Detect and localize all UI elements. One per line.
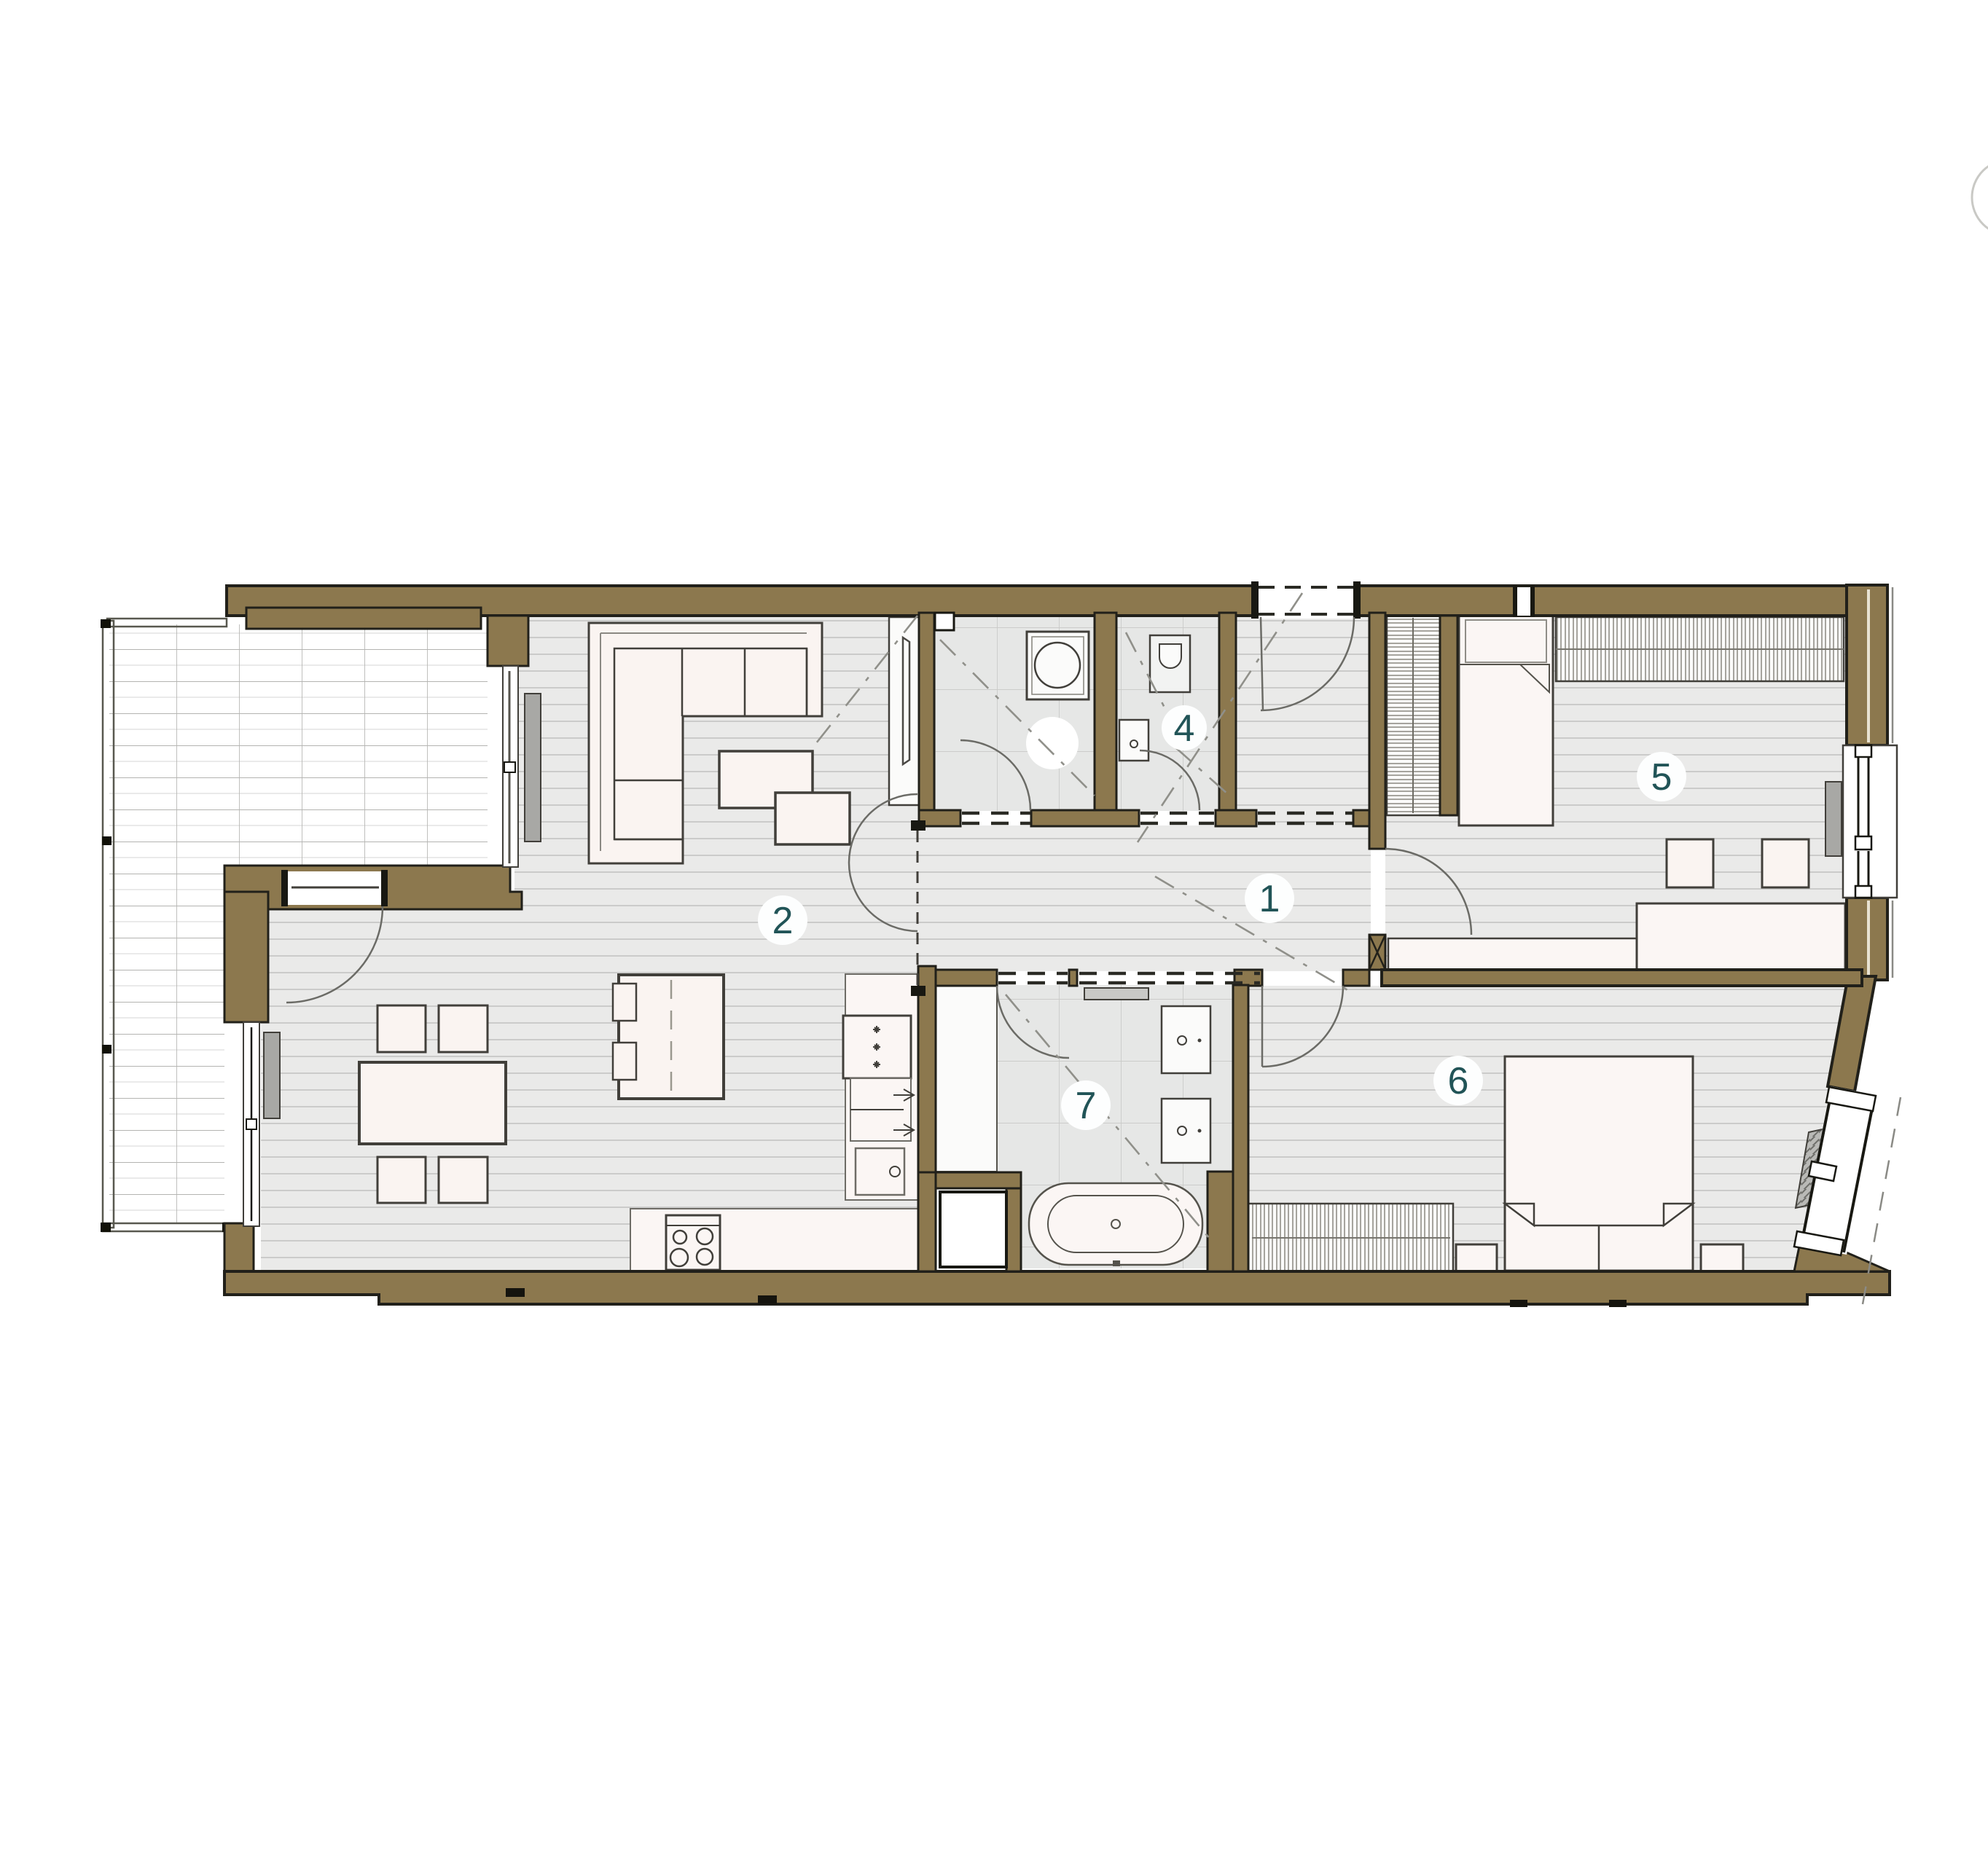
svg-text:5: 5 (1651, 756, 1672, 799)
svg-text:2: 2 (772, 900, 794, 942)
svg-text:7: 7 (1076, 1085, 1097, 1127)
svg-text:6: 6 (1448, 1060, 1469, 1102)
svg-text:4: 4 (1174, 707, 1195, 750)
svg-text:1: 1 (1259, 878, 1280, 920)
